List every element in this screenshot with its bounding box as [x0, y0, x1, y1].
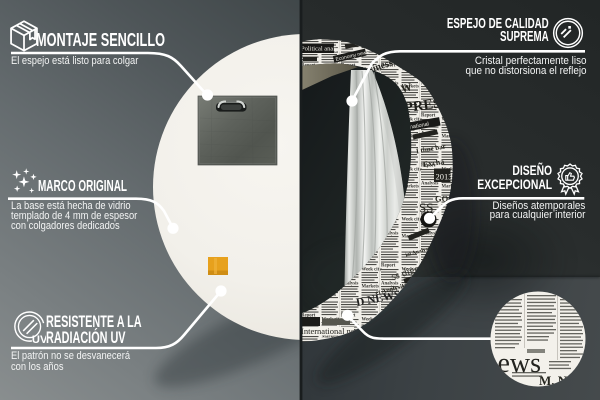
svg-text:M. N: M. N	[539, 373, 568, 388]
svg-text:2013: 2013	[436, 172, 453, 182]
svg-text:UV: UV	[32, 334, 46, 345]
svg-text:Political analysi: Political analysi	[301, 46, 343, 53]
